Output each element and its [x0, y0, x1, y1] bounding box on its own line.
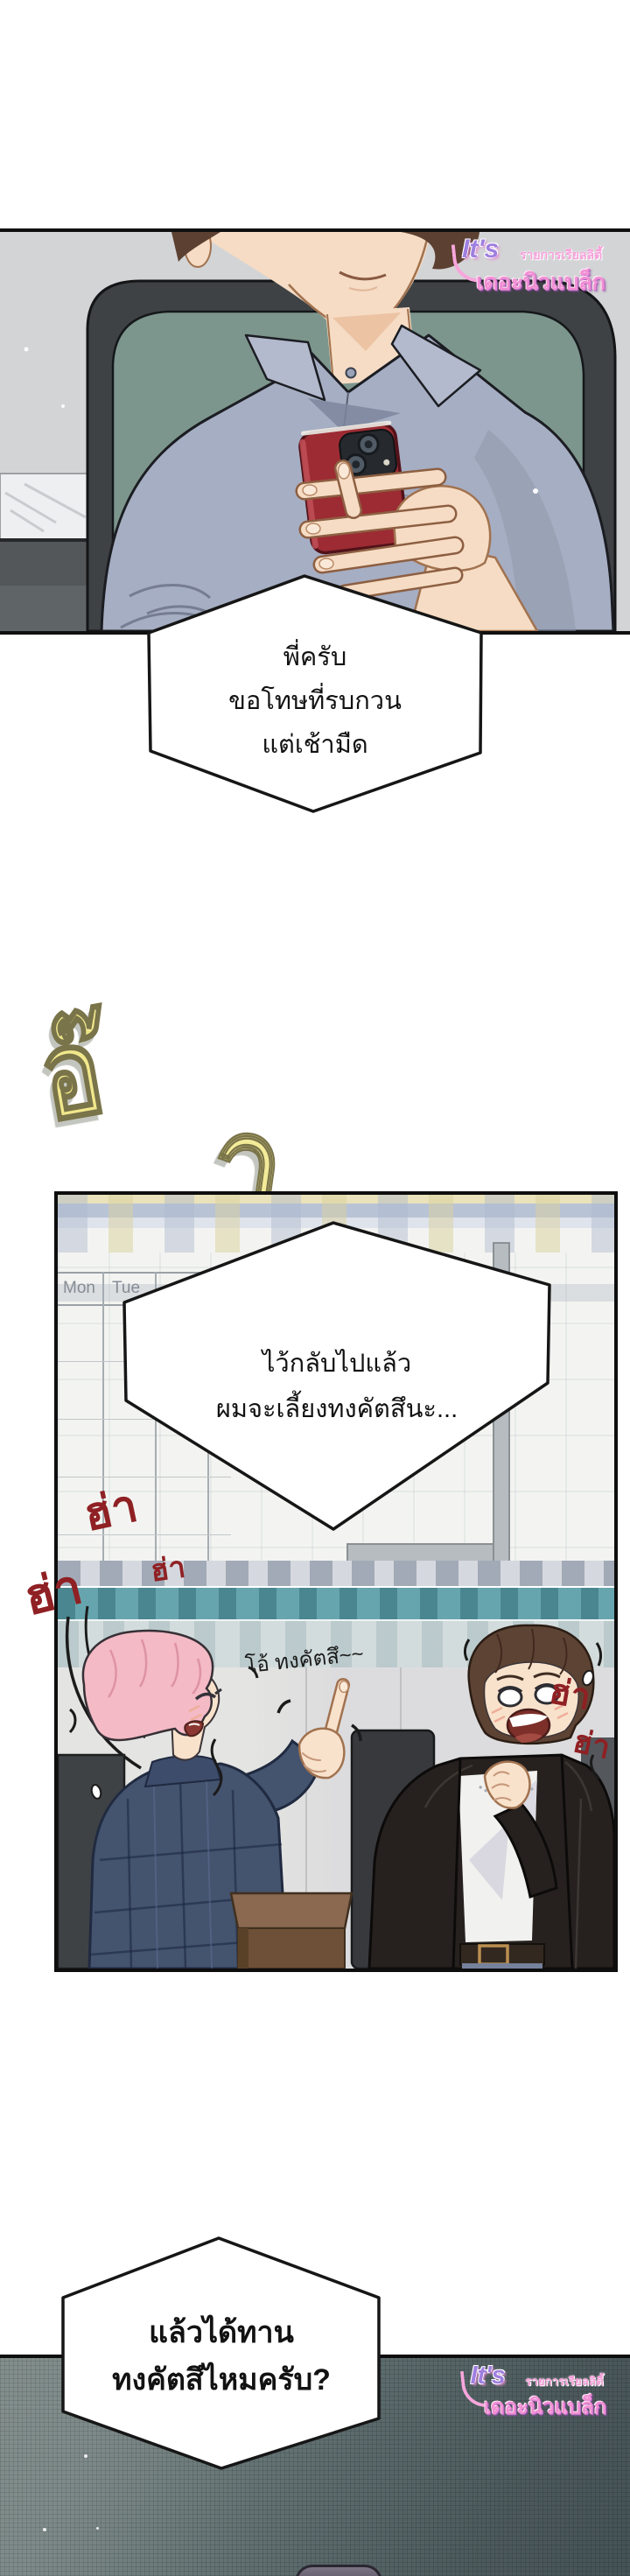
speech-bubble-3-text: แล้วได้ทาน ทงคัตสึไหมครับ? [64, 2309, 379, 2404]
bubble1-line1: พี่ครับ [140, 635, 490, 679]
watermark-subtitle: รายการเรียลลิตี้ [520, 246, 602, 265]
bubble1-line2: ขอโทษที่รบกวน [140, 679, 490, 723]
watermark-subtitle: รายการเรียลลิตี้ [525, 2373, 603, 2391]
sfx-laugh-red-2: ฮ่า [149, 1552, 187, 1586]
bubble2-line1: ไว้กลับไปแล้ว [162, 1341, 512, 1386]
desk [231, 1893, 352, 1969]
sfx-laugh-red-4: ฮ่า [547, 1674, 593, 1716]
speech-bubble-1-text: พี่ครับ ขอโทษที่รบกวน แต่เช้ามืด [140, 635, 490, 767]
bubble3-line2: ทงคัตสึไหมครับ? [64, 2356, 379, 2404]
sfx-laugh-red-3: ฮ่า [19, 1562, 87, 1624]
watermark-title: เดอะนิวแบล็ก [484, 2390, 606, 2425]
dust-speck [96, 2527, 99, 2530]
bubble1-line3: แต่เช้ามืด [140, 723, 490, 767]
sfx-laugh-red-5: ฮ่า [570, 1726, 613, 1765]
shirt-button [346, 369, 356, 378]
sfx-laugh-yellow-glyph-1: อ๊ [31, 1009, 112, 1141]
jeans [462, 1963, 542, 1969]
studio-watermark-bottom: It's รายการเรียลลิตี้ เดอะนิวแบล็ก [464, 2365, 630, 2424]
raised-hand [299, 1681, 348, 1779]
dust-speck [43, 2528, 46, 2531]
head-top-silhouette [295, 2565, 382, 2576]
watermark-its: It's [471, 2362, 506, 2390]
bubble2-line2: ผมจะเลี้ยงทงคัตสึนะ... [162, 1386, 512, 1432]
sfx-laugh-red-1: ฮ่า [80, 1483, 141, 1539]
bubble3-line1: แล้วได้ทาน [64, 2309, 379, 2356]
speech-bubble-2-text: ไว้กลับไปแล้ว ผมจะเลี้ยงทงคัตสึนะ... [162, 1341, 512, 1432]
watermark-its: It's [462, 235, 499, 264]
watermark-title: เดอะนิวแบล็ก [476, 264, 605, 300]
comic-page: It's รายการเรียลลิตี้ เดอะนิวแบล็ก พี่คร… [0, 0, 630, 2576]
studio-watermark-top: It's รายการเรียลลิตี้ เดอะนิวแบล็ก [455, 238, 630, 299]
